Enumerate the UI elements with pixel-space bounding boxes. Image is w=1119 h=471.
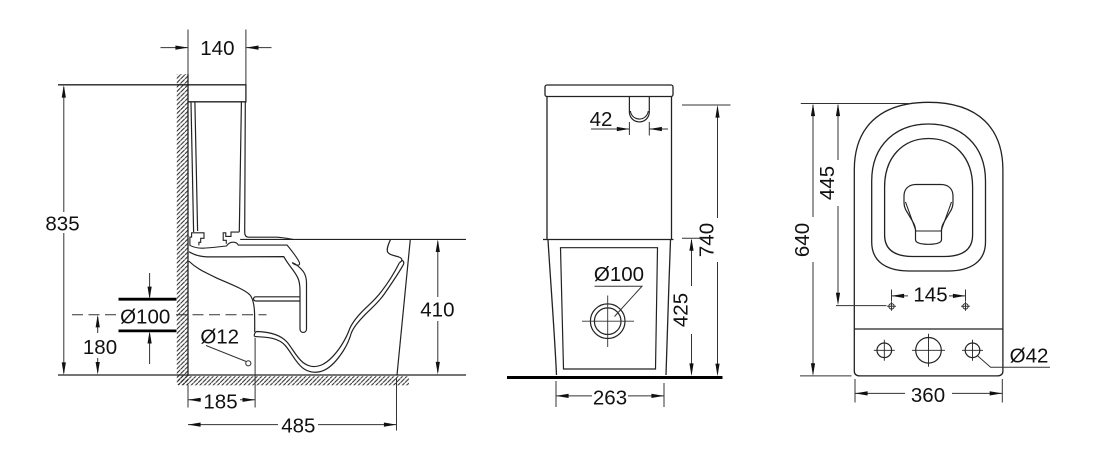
svg-text:410: 410 xyxy=(420,299,454,322)
svg-text:185: 185 xyxy=(203,391,237,414)
svg-text:640: 640 xyxy=(791,223,814,257)
svg-text:360: 360 xyxy=(911,384,945,407)
svg-text:Ø100: Ø100 xyxy=(120,306,170,329)
svg-text:Ø12: Ø12 xyxy=(200,325,239,348)
svg-text:42: 42 xyxy=(590,108,613,131)
svg-text:140: 140 xyxy=(200,37,234,60)
svg-text:Ø42: Ø42 xyxy=(1010,345,1049,368)
svg-text:445: 445 xyxy=(816,166,839,200)
svg-text:263: 263 xyxy=(593,386,627,409)
svg-text:Ø100: Ø100 xyxy=(594,263,644,286)
svg-text:145: 145 xyxy=(913,284,947,307)
svg-text:740: 740 xyxy=(696,223,719,257)
svg-text:180: 180 xyxy=(83,336,117,359)
svg-text:485: 485 xyxy=(281,414,315,437)
svg-text:835: 835 xyxy=(45,213,79,236)
svg-text:425: 425 xyxy=(670,293,693,327)
